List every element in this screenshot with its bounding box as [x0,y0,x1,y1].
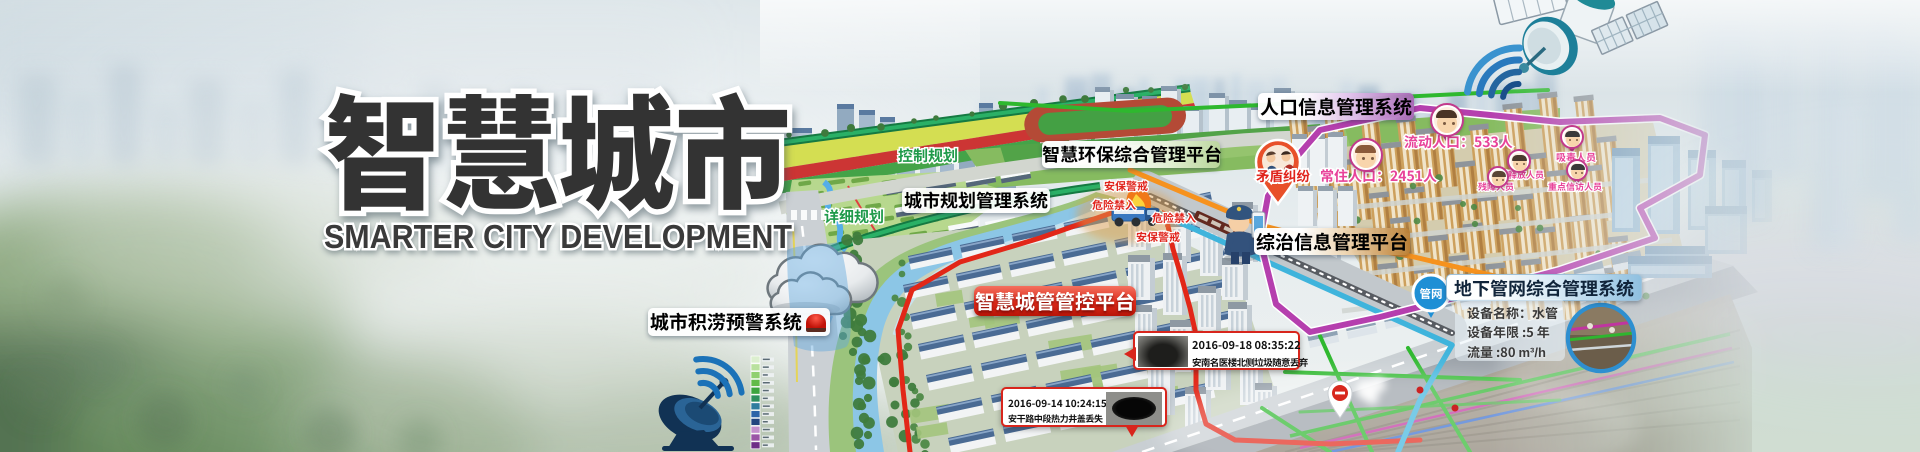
svg-text:控制规划: 控制规划 [898,145,958,166]
svg-text:安保警戒: 安保警戒 [1104,178,1148,194]
svg-text:详细规划: 详细规划 [824,206,884,227]
svg-text:矛盾纠纷: 矛盾纠纷 [1256,165,1310,185]
svg-text:危险禁入: 危险禁入 [1152,210,1196,226]
svg-text:常住人口：2451人: 常住人口：2451人 [1320,166,1437,186]
svg-text:安保警戒: 安保警戒 [1136,229,1180,245]
svg-text:危险禁入: 危险禁入 [1092,197,1136,213]
svg-text:重点信访人员: 重点信访人员 [1548,180,1602,193]
svg-text:智慧城市: 智慧城市 [325,57,791,235]
svg-text:流动人口：533人: 流动人口：533人 [1404,132,1513,152]
svg-text:SMARTER CITY DEVELOPMENT: SMARTER CITY DEVELOPMENT [324,218,792,255]
